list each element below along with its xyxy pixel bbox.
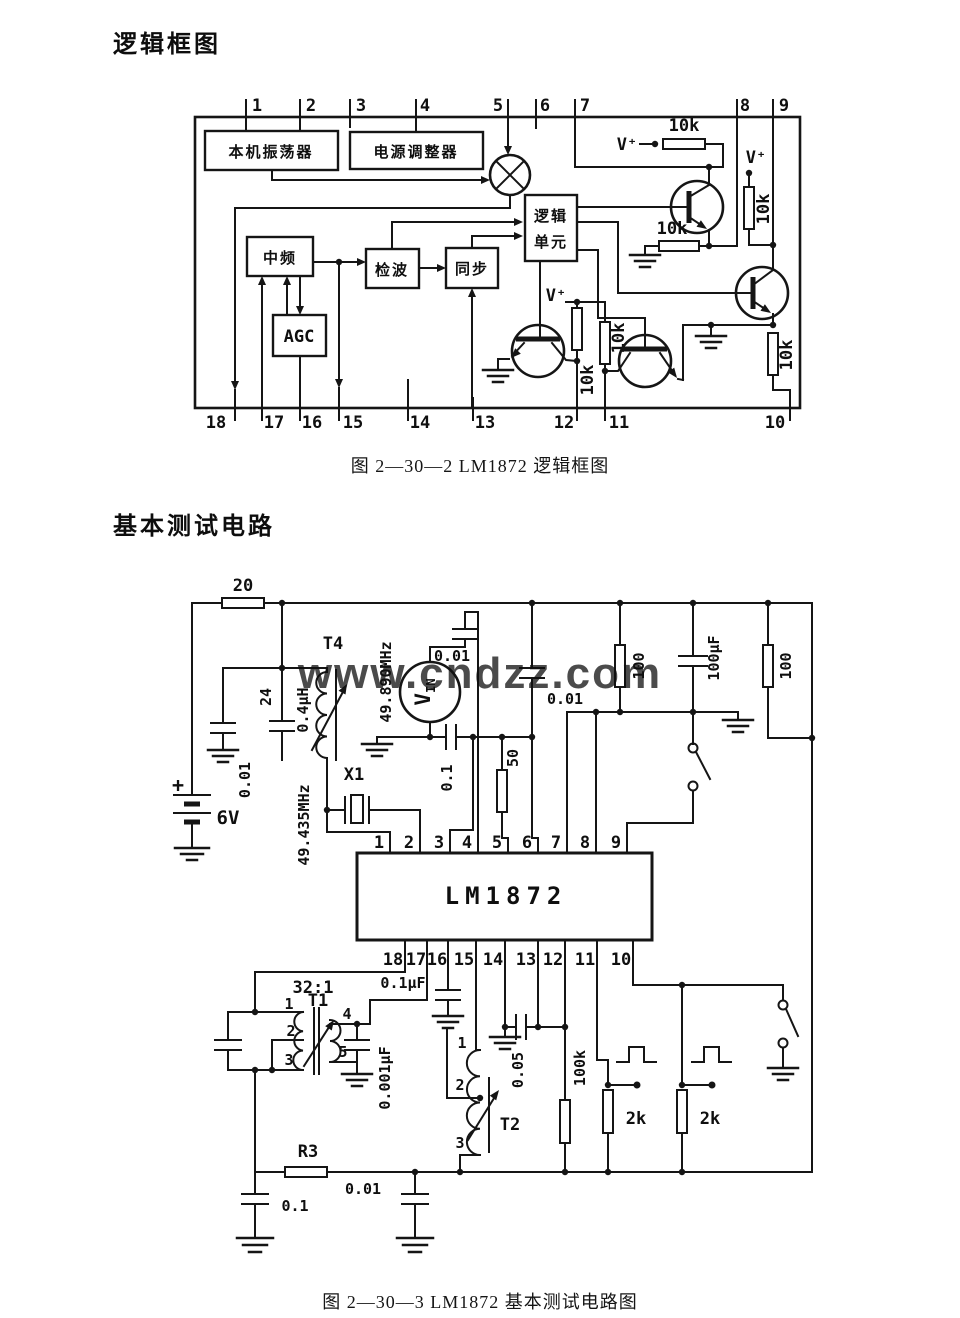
ground-icon	[433, 1016, 463, 1028]
vplus-label: V⁺	[746, 148, 766, 168]
basic-test-circuit-diagram: 20 + 6V	[140, 560, 960, 1280]
resistor-value: 10k	[657, 219, 688, 239]
pin-label: 4	[462, 833, 472, 853]
mid-decoupling: 0.01	[520, 603, 583, 853]
pin-label: 12	[543, 950, 563, 970]
figure-caption-2: 图 2—30—3 LM1872 基本测试电路图	[0, 1288, 960, 1314]
pin-label: 18	[383, 950, 403, 970]
resistor-value: 100	[777, 652, 795, 679]
ground-icon	[483, 370, 513, 382]
block-label: AGC	[284, 327, 315, 347]
bottom-pin-labels: 18 17 16 15 14 13 12 11 10	[206, 413, 785, 433]
pin-label: 14	[410, 413, 430, 433]
ic-bottom-pin-labels: 18 17 16 15 14 13 12 11 10	[383, 950, 631, 970]
pin-label: 8	[740, 96, 750, 116]
vplus-label: V⁺	[546, 286, 566, 306]
resistor-value: 10k	[777, 340, 797, 371]
watermark: www.cndzz.com	[297, 649, 662, 698]
pin-label: 9	[779, 96, 789, 116]
resistor-value: 2k	[700, 1109, 720, 1129]
ic-top-pin-labels: 1 2 3 4 5 6 7 8 9	[374, 833, 621, 853]
bottom-rail: R3 0.01 0.1	[237, 1142, 812, 1252]
terminal-number: 4	[342, 1005, 351, 1023]
capacitor-value: 0.1μF	[380, 974, 425, 992]
capacitor-value: 0.1	[281, 1197, 308, 1215]
resistor-value: 10k	[754, 194, 774, 225]
pin-label: 17	[264, 413, 284, 433]
oscillator-tank: 0.01 24 T4 0.4μH	[208, 603, 347, 810]
pin-label: 8	[580, 833, 590, 853]
pin-label: 14	[483, 950, 503, 970]
pin-label: 5	[492, 833, 502, 853]
ground-icon	[237, 1238, 273, 1252]
ic-part-number: LM1872	[445, 882, 568, 910]
block-detector: 检波	[366, 249, 419, 288]
pin-label: 16	[302, 413, 322, 433]
resistor-value: 2k	[626, 1109, 646, 1129]
battery-voltage: 6V	[217, 807, 240, 829]
capacitor-value: 24	[257, 688, 275, 706]
battery-plus-label: +	[172, 773, 184, 797]
pulse-waveform-icon	[692, 1047, 731, 1062]
logic-block-diagram: 1 2 3 4 5 6 7 8 9 18 17 16 15 14	[180, 80, 820, 450]
q1-stage: V⁺ 10k 10k	[575, 116, 737, 267]
block-sync: 同步	[446, 248, 498, 288]
battery-6v: + 6V	[172, 603, 239, 860]
resistor-value: 50	[504, 749, 522, 767]
pin-label: 13	[475, 413, 495, 433]
pin-label: 10	[765, 413, 785, 433]
block-if-amplifier: 中频	[247, 237, 313, 276]
pin-label: 4	[420, 96, 430, 116]
terminal-number: 1	[457, 1034, 466, 1052]
pin-label: 15	[343, 413, 363, 433]
output-section: 2k 2k	[597, 940, 798, 1172]
top-pin-labels: 1 2 3 4 5 6 7 8 9	[252, 96, 789, 116]
section-title-test-circuit: 基本测试电路	[113, 506, 275, 541]
capacitor-value: 0.01	[236, 762, 254, 798]
pin-label: 6	[540, 96, 550, 116]
pin-label: 16	[427, 950, 447, 970]
pin-label: 2	[306, 96, 316, 116]
block-power-regulator: 电源调整器	[350, 132, 483, 169]
pin-label: 1	[374, 833, 384, 853]
supply-filter-section: 100 100μF 100	[567, 603, 815, 853]
crystal-x1: 49.435MHz X1	[295, 765, 420, 866]
block-label: 本机振荡器	[228, 143, 313, 161]
pin-label: 7	[580, 96, 590, 116]
ground-icon	[630, 255, 660, 267]
q3-q4-stage: V⁺ 10k 10k	[483, 207, 683, 408]
pin-label: 5	[493, 96, 503, 116]
capacitor-value: 0.05	[509, 1052, 527, 1088]
pin-label: 12	[554, 413, 574, 433]
block-label: 同步	[455, 261, 489, 278]
section-title-logic-diagram: 逻辑框图	[113, 24, 221, 59]
terminal-number: 3	[455, 1134, 464, 1152]
ground-icon	[768, 1068, 798, 1080]
pin-label: 6	[522, 833, 532, 853]
block-label: 逻辑	[534, 207, 568, 225]
block-label: 单元	[534, 233, 568, 251]
ground-icon	[397, 1238, 433, 1252]
pin-label: 18	[206, 413, 226, 433]
pin-label: 3	[356, 96, 366, 116]
resistor-label: R3	[298, 1142, 318, 1162]
resistor-value: 10k	[578, 365, 598, 396]
crystal-frequency: 49.435MHz	[295, 784, 313, 865]
figure-caption-1: 图 2—30—2 LM1872 逻辑框图	[0, 452, 960, 478]
vplus-label: V⁺	[617, 135, 637, 155]
pin-label: 1	[252, 96, 262, 116]
capacitor-value: 0.01	[345, 1180, 381, 1198]
input-rail: 0.1 50	[362, 725, 535, 853]
terminal-number: 3	[284, 1051, 293, 1069]
agc-filter-section: 0.05 100k	[490, 940, 589, 1172]
block-label: 中频	[263, 249, 297, 267]
pin-label: 15	[454, 950, 474, 970]
capacitor-value: 100μF	[705, 635, 723, 680]
mixer-symbol	[490, 155, 530, 195]
resistor-value: 20	[233, 576, 253, 596]
capacitor-value: 0.001μF	[376, 1046, 394, 1109]
block-label: 检波	[375, 261, 409, 279]
q2-stage: V⁺ 10k 10k	[577, 148, 797, 408]
ground-icon	[696, 336, 726, 348]
ground-icon	[208, 750, 238, 762]
resistor-value: 100k	[571, 1050, 589, 1086]
ground-icon	[175, 848, 209, 860]
capacitor-value: 0.1	[438, 764, 456, 791]
pin-label: 9	[611, 833, 621, 853]
pin-label: 2	[404, 833, 414, 853]
ground-icon	[362, 744, 392, 756]
crystal-label: X1	[344, 765, 364, 785]
pin-label: 7	[551, 833, 561, 853]
ground-icon	[723, 720, 753, 732]
pin-label: 11	[609, 413, 629, 433]
terminal-number: 1	[284, 995, 293, 1013]
block-agc: AGC	[273, 315, 326, 356]
pin-label: 10	[611, 950, 631, 970]
pin-label: 11	[575, 950, 595, 970]
pulse-waveform-icon	[617, 1047, 656, 1062]
block-local-oscillator: 本机振荡器	[205, 131, 338, 170]
transformer-label: T2	[500, 1115, 520, 1135]
scanned-schematic-page: 逻辑框图 1 2 3 4 5 6 7 8 9	[0, 0, 960, 1318]
pin-label: 3	[434, 833, 444, 853]
pin-label: 13	[516, 950, 536, 970]
block-label: 电源调整器	[373, 143, 458, 161]
resistor-value: 10k	[669, 116, 700, 136]
ground-icon	[342, 1074, 372, 1086]
pin-label: 17	[406, 950, 426, 970]
block-logic-unit: 逻辑 单元	[525, 195, 577, 261]
terminal-number: 2	[455, 1076, 464, 1094]
